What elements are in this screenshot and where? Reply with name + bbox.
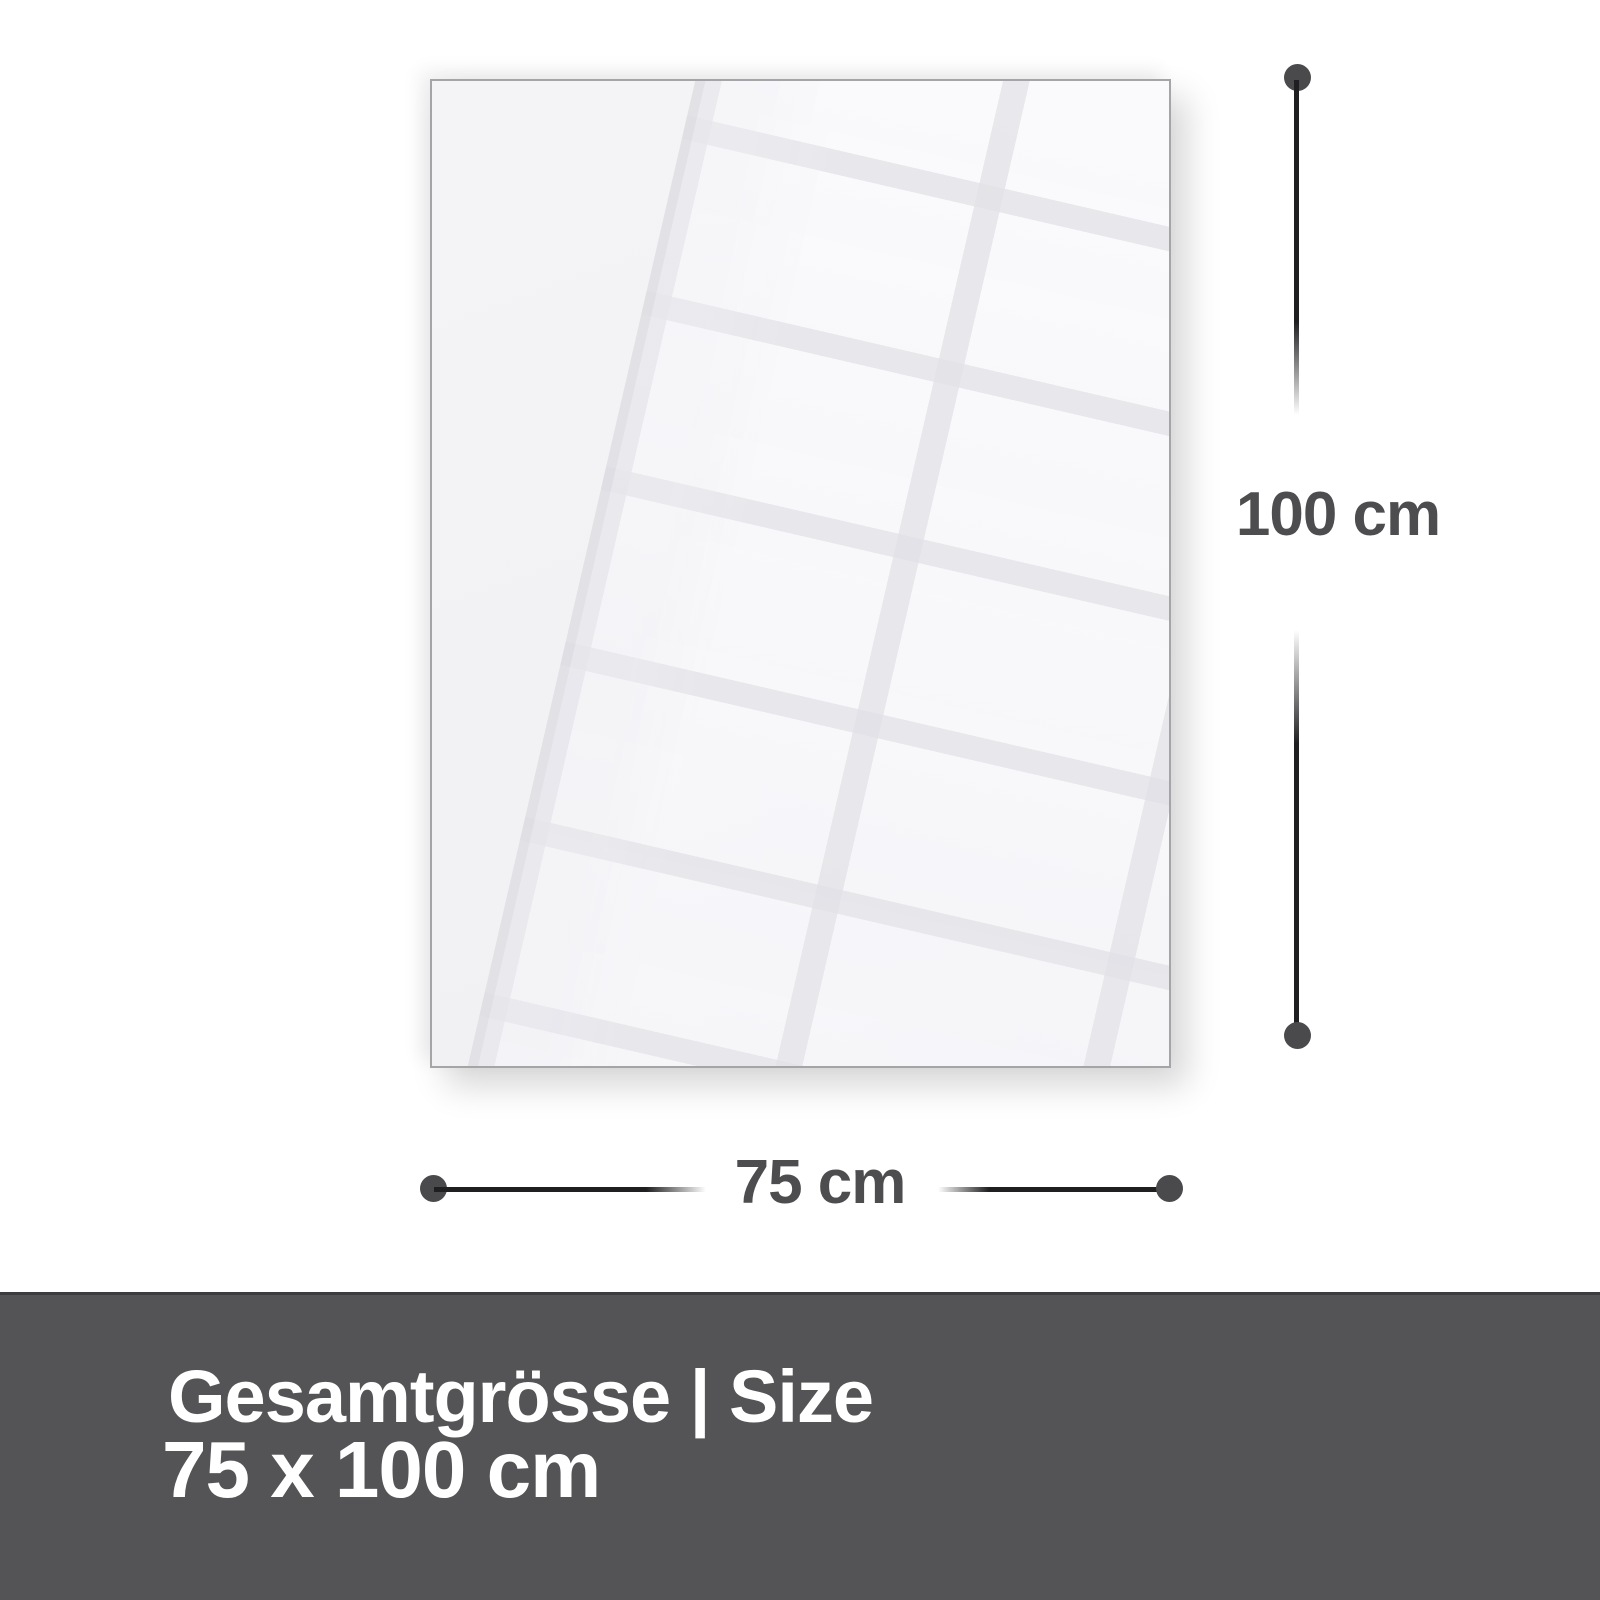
dimension-endpoint-dot-bottom xyxy=(1284,1022,1311,1049)
width-dimension-line-left xyxy=(434,1187,706,1192)
footer-title: Gesamtgrösse | Size xyxy=(168,1360,873,1434)
width-dimension-label: 75 cm xyxy=(670,1152,970,1214)
width-dimension-line-right xyxy=(938,1187,1170,1192)
window-reflection xyxy=(439,79,1171,1068)
dimension-endpoint-dot-right xyxy=(1156,1175,1183,1202)
height-dimension-line-upper xyxy=(1294,80,1299,415)
product-size-diagram: 100 cm 75 cm Gesamtgrösse | Size 75 x 10… xyxy=(0,0,1600,1600)
glass-panel xyxy=(430,79,1171,1068)
height-dimension-line-lower xyxy=(1294,630,1299,1036)
footer-size-value: 75 x 100 cm xyxy=(162,1430,600,1510)
height-dimension-label: 100 cm xyxy=(1188,484,1488,546)
